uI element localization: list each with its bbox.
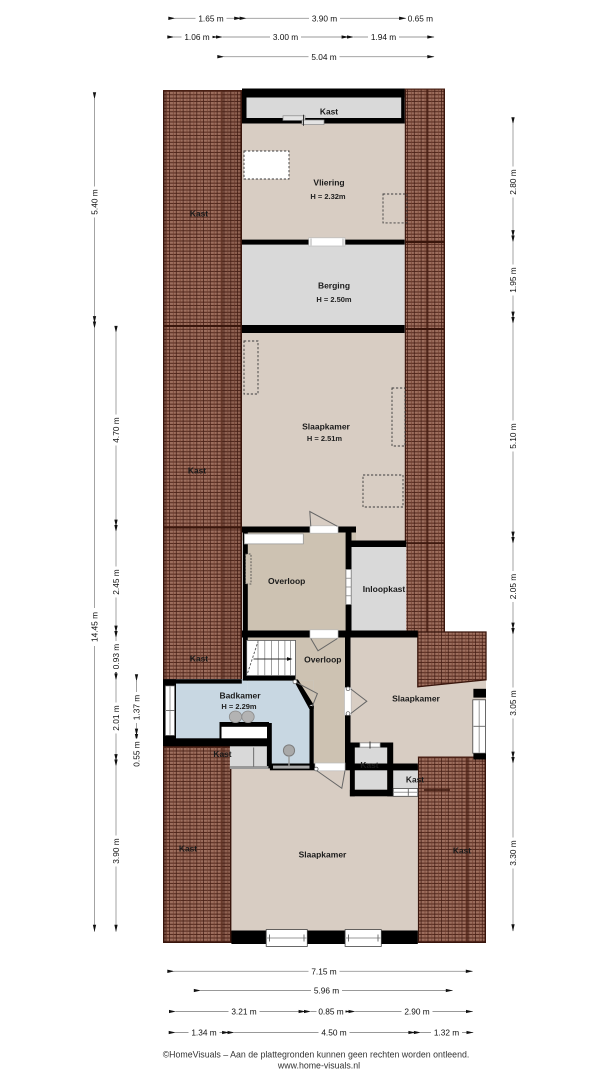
svg-text:1.32 m: 1.32 m: [434, 1028, 459, 1038]
svg-text:Kast: Kast: [360, 760, 378, 770]
svg-text:5.04 m: 5.04 m: [311, 52, 336, 62]
svg-text:7.15 m: 7.15 m: [311, 967, 336, 977]
svg-text:H = 2.51m: H = 2.51m: [307, 434, 343, 443]
svg-text:5.40 m: 5.40 m: [90, 189, 100, 214]
svg-text:2.45 m: 2.45 m: [111, 569, 121, 594]
svg-text:H = 2.50m: H = 2.50m: [316, 295, 352, 304]
svg-text:1.37 m: 1.37 m: [132, 695, 142, 720]
svg-text:3.30 m: 3.30 m: [508, 840, 518, 865]
svg-text:Inloopkast: Inloopkast: [363, 584, 406, 594]
svg-text:3.90 m: 3.90 m: [312, 14, 337, 24]
svg-text:Slaapkamer: Slaapkamer: [302, 422, 350, 432]
svg-text:3.05 m: 3.05 m: [508, 690, 518, 715]
svg-text:Overloop: Overloop: [268, 576, 305, 586]
svg-text:14.45 m: 14.45 m: [90, 612, 100, 642]
svg-text:3.21 m: 3.21 m: [231, 1007, 256, 1017]
svg-text:Kast: Kast: [320, 107, 338, 117]
svg-text:0.85 m: 0.85 m: [318, 1007, 343, 1017]
svg-text:www.home-visuals.nl: www.home-visuals.nl: [277, 1061, 360, 1071]
svg-text:Berging: Berging: [318, 281, 350, 291]
svg-text:Kast: Kast: [190, 209, 208, 219]
svg-text:0.65 m: 0.65 m: [408, 14, 433, 24]
svg-text:1.34 m: 1.34 m: [191, 1028, 216, 1038]
svg-text:Overloop: Overloop: [304, 655, 341, 665]
svg-text:0.55 m: 0.55 m: [132, 741, 142, 766]
svg-text:H = 2.32m: H = 2.32m: [310, 192, 346, 201]
svg-text:3.00 m: 3.00 m: [273, 32, 298, 42]
svg-text:Kast: Kast: [190, 654, 208, 664]
svg-text:1.65 m: 1.65 m: [198, 14, 223, 24]
svg-text:Slaapkamer: Slaapkamer: [392, 694, 440, 704]
svg-text:1.94 m: 1.94 m: [371, 32, 396, 42]
svg-text:Badkamer: Badkamer: [219, 691, 261, 701]
svg-text:Vliering: Vliering: [313, 178, 344, 188]
svg-text:0.93 m: 0.93 m: [111, 644, 121, 669]
svg-text:3.90 m: 3.90 m: [111, 838, 121, 863]
svg-text:4.50 m: 4.50 m: [321, 1028, 346, 1038]
svg-text:Kast: Kast: [406, 775, 424, 785]
svg-text:4.70 m: 4.70 m: [111, 417, 121, 442]
svg-text:1.06 m: 1.06 m: [184, 32, 209, 42]
svg-text:Kast: Kast: [213, 749, 231, 759]
svg-text:2.80 m: 2.80 m: [508, 169, 518, 194]
svg-text:2.01 m: 2.01 m: [111, 705, 121, 730]
svg-text:5.10 m: 5.10 m: [508, 423, 518, 448]
svg-text:2.05 m: 2.05 m: [508, 574, 518, 599]
svg-text:Slaapkamer: Slaapkamer: [299, 850, 347, 860]
svg-text:5.96 m: 5.96 m: [314, 986, 339, 996]
svg-text:©HomeVisuals – Aan de plattegr: ©HomeVisuals – Aan de plattegronden kunn…: [163, 1050, 470, 1060]
svg-text:1.95 m: 1.95 m: [508, 267, 518, 292]
svg-text:Kast: Kast: [179, 844, 197, 854]
svg-text:Kast: Kast: [188, 466, 206, 476]
svg-text:H = 2.29m: H = 2.29m: [221, 702, 257, 711]
svg-text:2.90 m: 2.90 m: [404, 1007, 429, 1017]
svg-text:Kast: Kast: [453, 846, 471, 856]
